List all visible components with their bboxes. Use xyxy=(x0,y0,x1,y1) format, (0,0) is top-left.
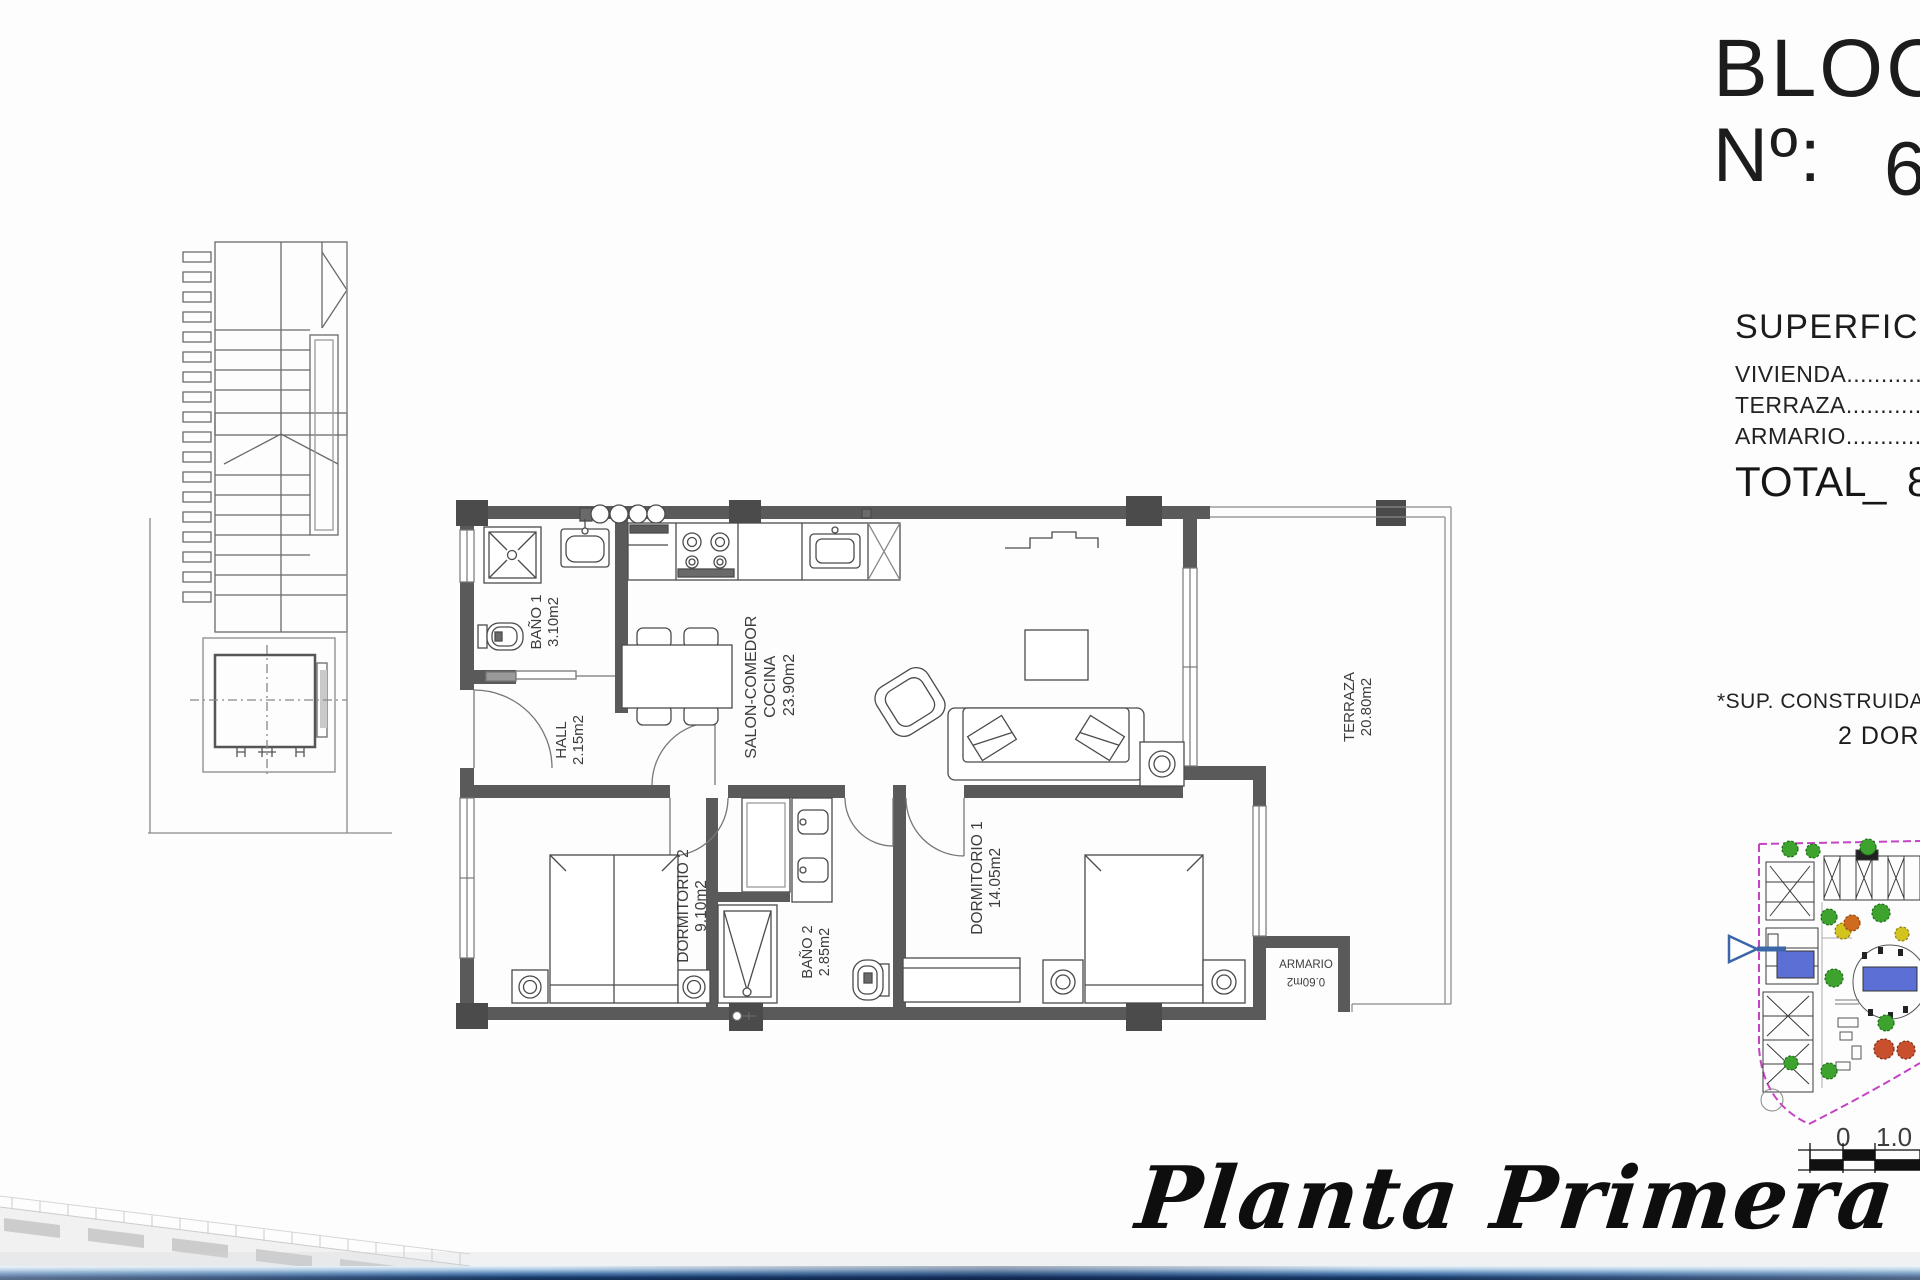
site-building-top xyxy=(1824,850,1920,900)
bathroom2 xyxy=(706,798,889,1003)
site-selected-unit xyxy=(1777,951,1814,978)
surface-total-row: TOTAL _ 8 xyxy=(1735,458,1866,506)
window-salon-terraza xyxy=(1183,568,1197,766)
window-dormitorio1 xyxy=(1253,806,1266,936)
living-room xyxy=(870,630,1184,786)
site-furniture xyxy=(1835,1000,1861,1070)
window-bano1 xyxy=(460,530,474,582)
desk-icon xyxy=(903,958,1020,1002)
room-label-hall: HALL2.15m2 xyxy=(553,715,587,765)
surface-row-terraza: TERRAZA.............................. xyxy=(1735,392,1920,419)
bano2-door xyxy=(845,798,893,846)
surface-row-vivienda: VIVIENDA.............................. xyxy=(1735,361,1920,388)
elevator xyxy=(190,638,347,777)
site-plan xyxy=(1729,839,1920,1124)
room-label-armario-area: 0.60m2 xyxy=(1287,975,1325,987)
bano1-sliding-door xyxy=(486,671,615,681)
stair-arrow-icon xyxy=(322,252,347,328)
vanity-icon xyxy=(792,798,832,902)
site-building-left1 xyxy=(1766,862,1814,920)
toilet2-icon xyxy=(853,960,889,1000)
room-label-armario: ARMARIO xyxy=(1279,959,1333,971)
room-label-dormitorio1: DORMITORIO 114.05m2 xyxy=(969,821,1004,934)
total-value: 8 xyxy=(1907,458,1920,506)
dormitorio2-door xyxy=(670,798,728,856)
total-label: TOTAL xyxy=(1735,458,1866,505)
room-label-bano2: BAÑO 22.85m2 xyxy=(799,925,833,978)
nightstand-icon xyxy=(1203,960,1245,1003)
site-pool xyxy=(1863,967,1917,991)
footer-haze xyxy=(0,1252,1920,1266)
stairwell xyxy=(148,242,392,833)
room-label-bano1: BAÑO 13.10m2 xyxy=(528,594,562,649)
shower2-icon xyxy=(718,905,777,1003)
block-title: BLOC xyxy=(1713,22,1920,116)
sofa-icon xyxy=(948,708,1144,780)
coffee-table xyxy=(1025,630,1088,680)
unit-number-value: 6 xyxy=(1884,126,1920,213)
side-table-lamp-icon xyxy=(1140,742,1184,786)
nightstand-icon xyxy=(512,970,548,1003)
tv-unit-icon xyxy=(1005,532,1098,548)
room-label-terraza: TERRAZA20.80m2 xyxy=(1341,672,1375,742)
plan-title: Planta Primera xyxy=(1132,1148,1901,1249)
armchair-icon xyxy=(870,662,951,741)
dormitorio1-door xyxy=(906,798,964,856)
surface-row-armario: ARMARIO.............................. xyxy=(1735,423,1920,450)
surfaces-heading: SUPERFICIE xyxy=(1735,308,1920,347)
corridor-door xyxy=(652,722,715,785)
sink1-icon xyxy=(561,519,609,567)
ladder-strip xyxy=(183,252,211,602)
dining-set xyxy=(622,628,732,725)
room-label-dormitorio2: DORMITORIO 29.10m2 xyxy=(675,849,710,962)
window-dormitorio2 xyxy=(460,798,474,958)
bedrooms-note: 2 DORM xyxy=(1838,722,1920,751)
toilet1-icon xyxy=(478,623,523,650)
total-separator: _ xyxy=(1863,458,1886,506)
unit-number-label: Nº: xyxy=(1713,112,1823,199)
entry-door xyxy=(474,690,552,768)
shower1-icon xyxy=(484,527,541,583)
bed1 xyxy=(1085,855,1203,1003)
nightstand-icon xyxy=(1043,960,1083,1003)
floorplan-drawing: BAÑO 13.10m2 HALL2.15m2 SALON-COMEDOR CO… xyxy=(0,0,1920,1280)
footer-bar xyxy=(0,1266,1920,1280)
room-label-salon: SALON-COMEDOR COCINA 23.90m2 xyxy=(743,611,798,759)
constructed-surfaces-note: *SUP. CONSTRUIDAS xyxy=(1717,690,1920,714)
dining-table xyxy=(622,645,732,708)
site-building-left3 xyxy=(1763,992,1813,1092)
nightstand-icon xyxy=(678,970,710,1003)
